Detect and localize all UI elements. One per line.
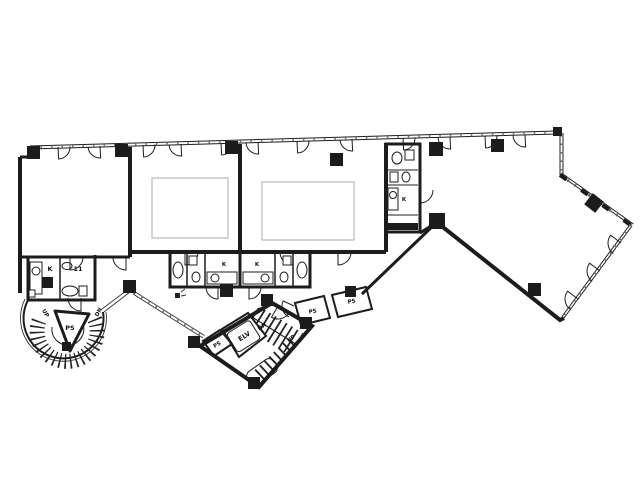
column bbox=[429, 142, 443, 156]
column bbox=[528, 283, 541, 296]
sink-icon bbox=[390, 192, 397, 199]
ps-label: PS bbox=[65, 324, 75, 332]
column bbox=[123, 280, 136, 293]
column bbox=[42, 277, 53, 288]
kitchen-label: K bbox=[402, 197, 407, 203]
toilet-icon bbox=[62, 286, 78, 296]
toilet-icon bbox=[392, 152, 402, 164]
column bbox=[220, 284, 233, 297]
sink-icon bbox=[211, 274, 219, 282]
kitchen-label: K bbox=[222, 262, 227, 268]
sink-icon bbox=[32, 267, 40, 275]
column bbox=[330, 153, 343, 166]
column bbox=[188, 336, 200, 348]
column bbox=[300, 317, 312, 329]
floor-plan-canvas: K 11 PS UP DN bbox=[0, 0, 640, 480]
toilet-icon bbox=[173, 262, 183, 278]
column bbox=[115, 144, 128, 157]
column bbox=[248, 377, 260, 389]
toilet-icon bbox=[297, 262, 307, 278]
column bbox=[62, 342, 71, 351]
column bbox=[261, 294, 273, 306]
column bbox=[429, 213, 445, 229]
column bbox=[345, 286, 356, 297]
column bbox=[225, 141, 238, 154]
column bbox=[27, 146, 40, 159]
sink-icon bbox=[261, 274, 269, 282]
kitchen-label: K bbox=[255, 262, 260, 268]
column bbox=[491, 139, 504, 152]
column bbox=[553, 127, 562, 136]
